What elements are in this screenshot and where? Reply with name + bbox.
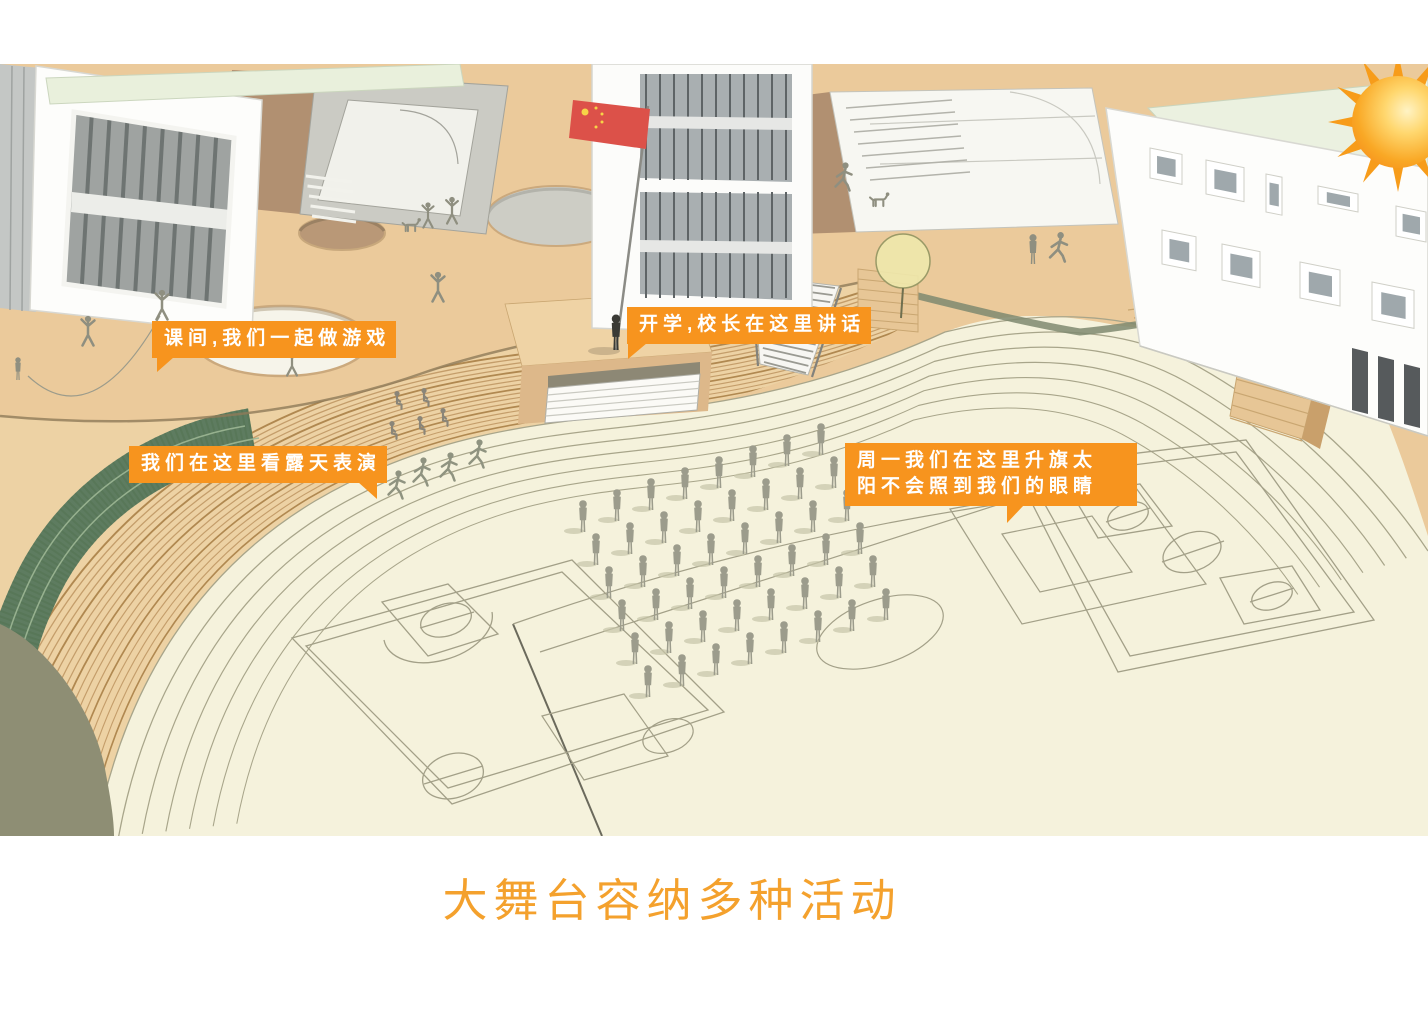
page-title: 大舞台容纳多种活动 (0, 864, 1344, 929)
callout-principal-speech: 开学,校长在这里讲话 (627, 307, 871, 344)
callout-open-air-show: 我们在这里看露天表演 (129, 446, 387, 483)
callout-tail (157, 357, 174, 372)
callout-text: 课间,我们一起做游戏 (164, 328, 390, 349)
callout-text: 开学,校长在这里讲话 (639, 314, 865, 335)
callout-text-line1: 周一我们在这里升旗太 (857, 450, 1097, 471)
callout-flag-raising: 周一我们在这里升旗太阳不会照到我们的眼睛 (845, 443, 1137, 506)
callout-play-games: 课间,我们一起做游戏 (152, 321, 396, 358)
building-left (0, 64, 262, 334)
building-center (592, 64, 812, 336)
callout-tail (1007, 505, 1024, 523)
callout-tail (628, 343, 647, 359)
callout-tail (358, 482, 377, 499)
campus-rendering: 课间,我们一起做游戏 我们在这里看露天表演 开学,校长在这里讲话 周一我们在这里… (0, 64, 1428, 836)
callout-text-line2: 阳不会照到我们的眼睛 (857, 476, 1097, 497)
callout-text: 我们在这里看露天表演 (141, 453, 381, 474)
